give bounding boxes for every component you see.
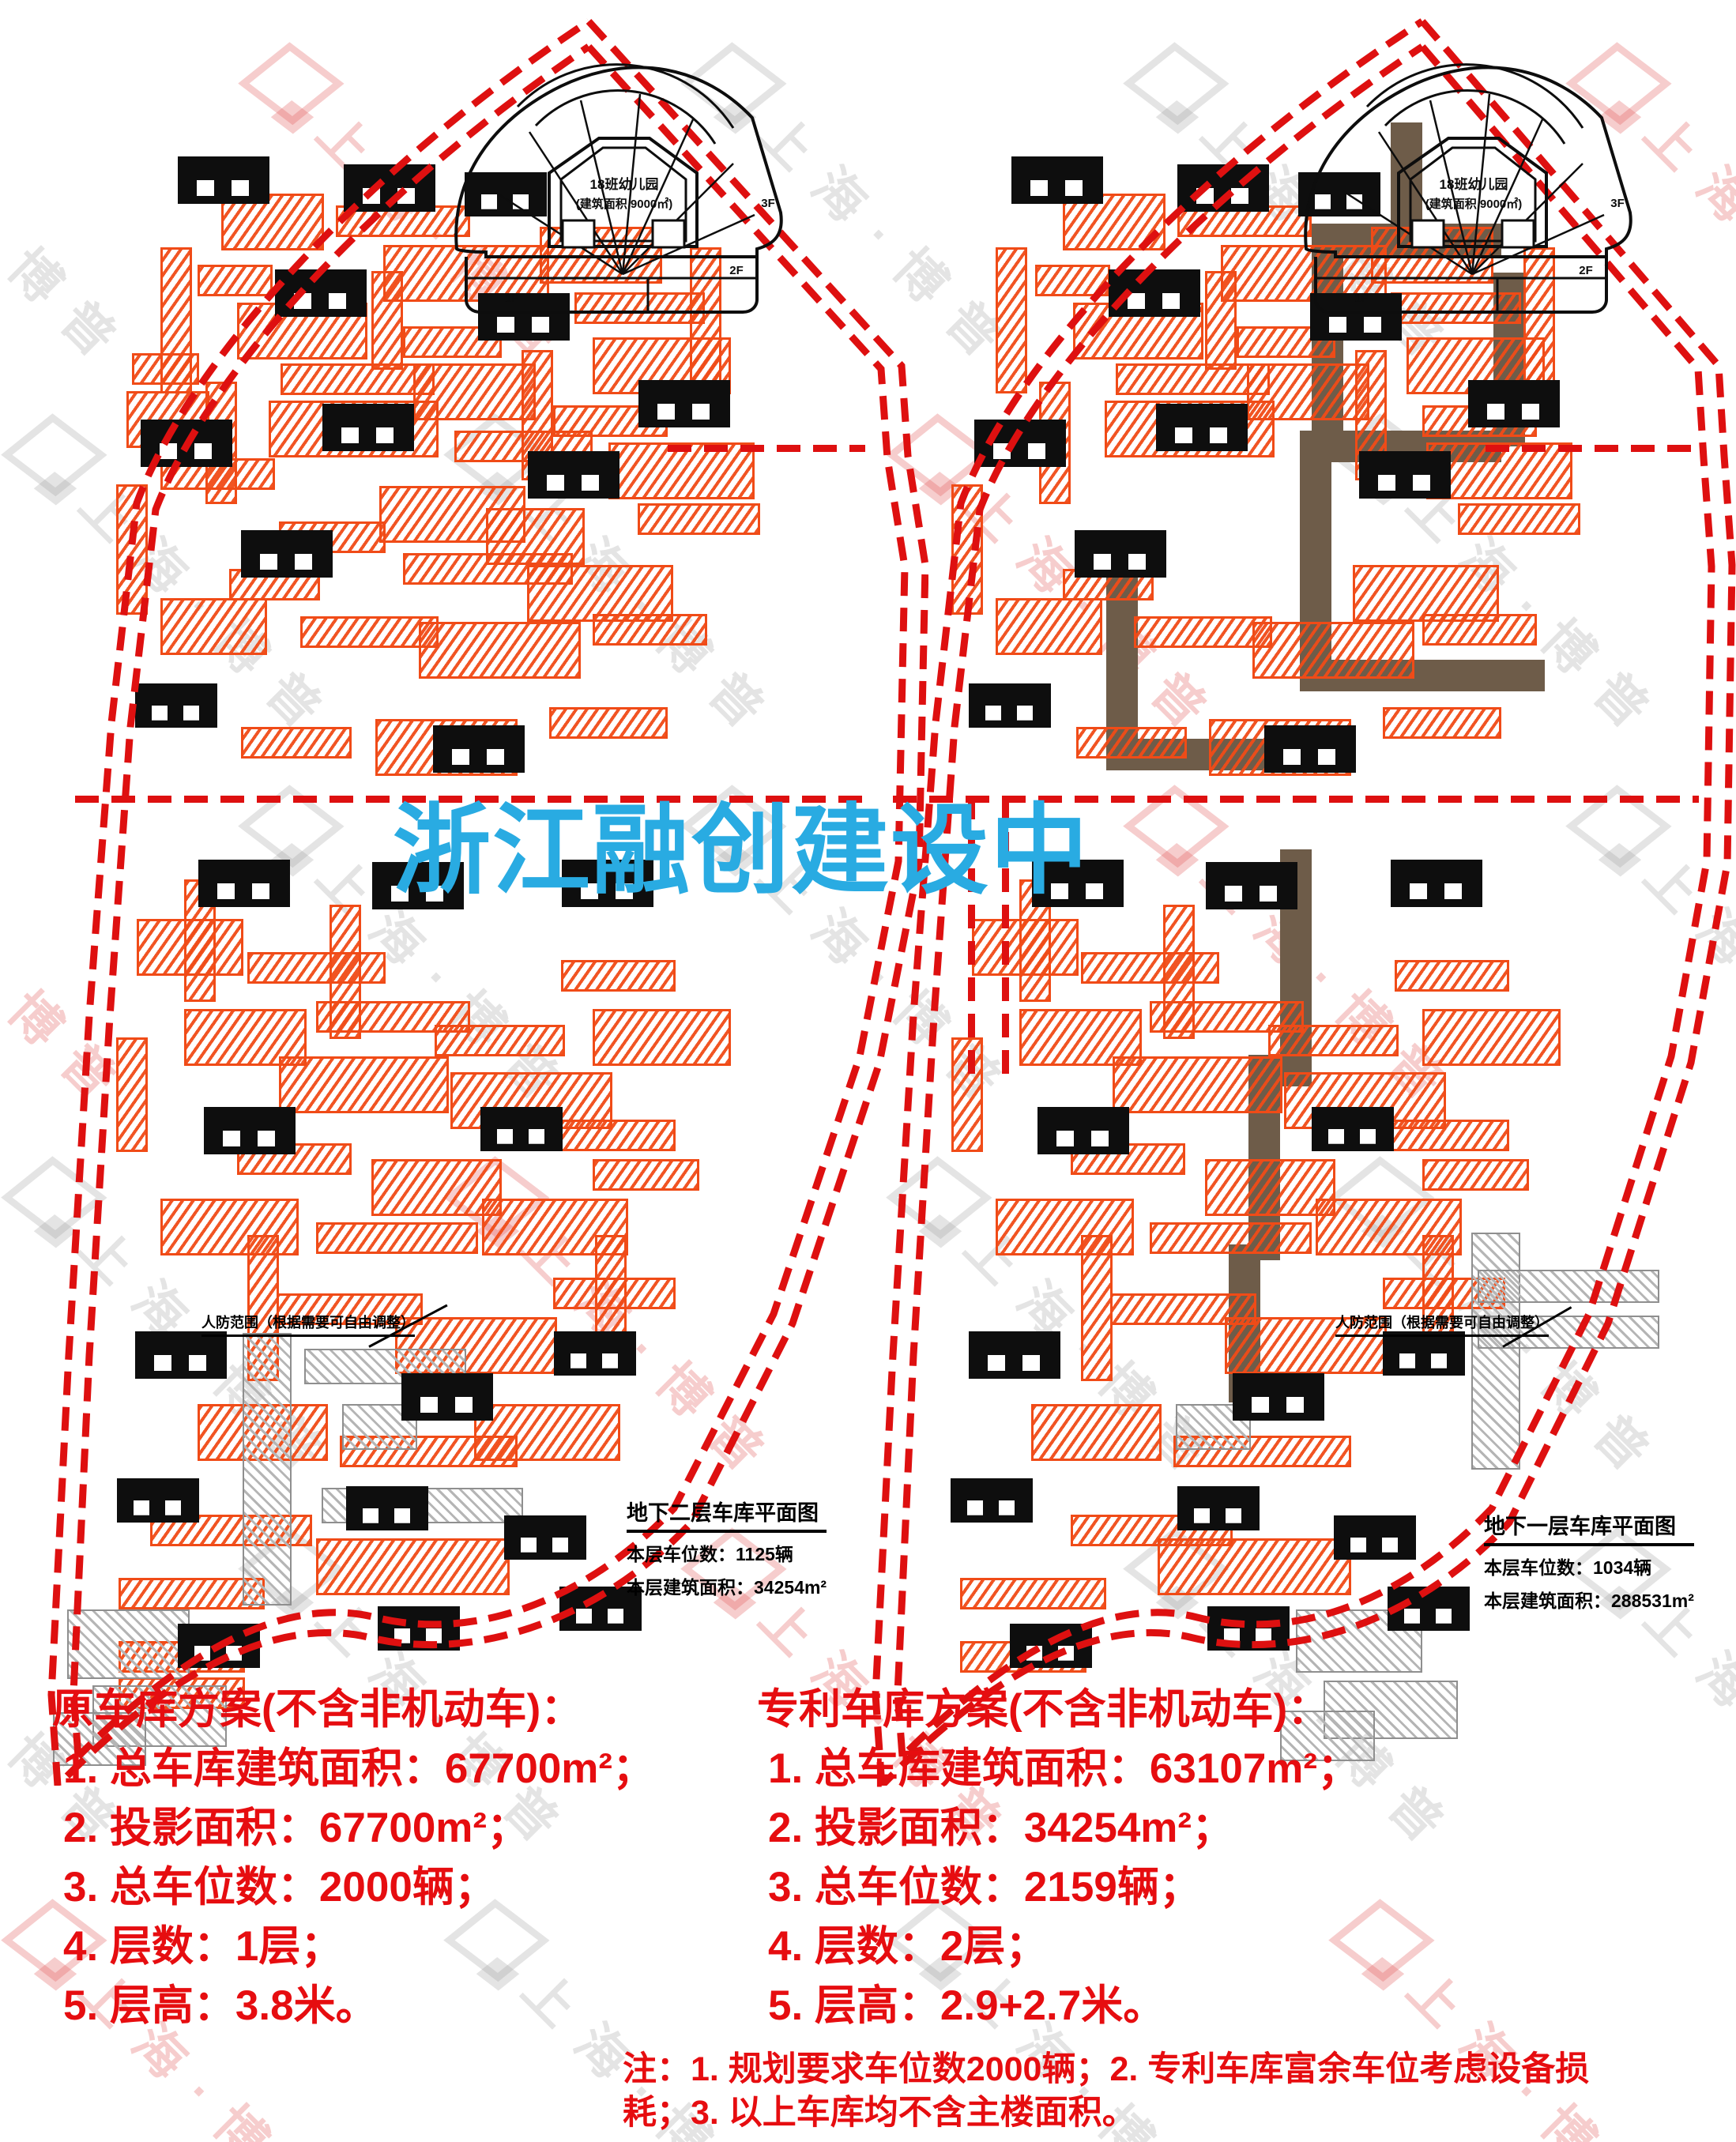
plan-area-right: 本层建筑面积：288531m² bbox=[1484, 1586, 1694, 1613]
summary-left-item: 4. 层数：1层； bbox=[52, 1917, 654, 1976]
summary-right-item: 1. 总车库建筑面积：63107m²； bbox=[757, 1739, 1359, 1798]
plan-stalls-right: 本层车位数：1034辆 bbox=[1484, 1553, 1694, 1579]
kindergarten-building-drawing: 18班幼儿园(建筑面积 9000㎡)1F2F3F bbox=[1292, 45, 1648, 318]
overlay-title: 浙江融创建设中 bbox=[393, 770, 1090, 913]
kindergarten-building-drawing: 18班幼儿园(建筑面积 9000㎡)1F2F3F bbox=[442, 45, 798, 318]
summary-right-item: 2. 投影面积：34254m²； bbox=[757, 1798, 1359, 1858]
floor-label-2f: 2F bbox=[729, 264, 744, 277]
summary-left-item: 1. 总车库建筑面积：67700m²； bbox=[52, 1739, 654, 1798]
civil-defense-annotation-left: 人防范围（根据需要可自由调整） bbox=[201, 1312, 415, 1337]
page-canvas: 上海·博普上海·博普上海·博普上海·博普上海·博普上海·博普上海·博普上海·博普… bbox=[0, 0, 1736, 2142]
floor-label-2f: 2F bbox=[1579, 264, 1593, 277]
floor-label-3f: 3F bbox=[761, 197, 775, 210]
summary-right-item: 5. 层高：2.9+2.7米。 bbox=[757, 1976, 1359, 2035]
info-box-right: 地下一层车库平面图 本层车位数：1034辆 本层建筑面积：288531m² bbox=[1484, 1509, 1694, 1613]
summary-left-item: 2. 投影面积：67700m²； bbox=[52, 1798, 654, 1858]
floor-label-3f: 3F bbox=[1610, 197, 1625, 210]
summary-left-header: 原车库方案(不含非机动车)： bbox=[52, 1680, 654, 1739]
kindergarten-label: 18班幼儿园 bbox=[1440, 176, 1508, 192]
floor-label-1f: 1F bbox=[1354, 292, 1369, 305]
summary-right-item: 4. 层数：2层； bbox=[757, 1917, 1359, 1976]
kindergarten-area-label: (建筑面积 9000㎡) bbox=[576, 197, 673, 211]
summary-right-item: 3. 总车位数：2159辆； bbox=[757, 1858, 1359, 1917]
plan-title-right: 地下一层车库平面图 bbox=[1484, 1509, 1694, 1546]
summary-left-item: 3. 总车位数：2000辆； bbox=[52, 1858, 654, 1917]
footnote-line: 耗；3. 以上车库均不含主楼面积。 bbox=[623, 2091, 1589, 2135]
info-box-left: 地下二层车库平面图 本层车位数：1125辆 本层建筑面积：34254m² bbox=[627, 1496, 827, 1599]
summary-patent-scheme: 专利车库方案(不含非机动车)： 1. 总车库建筑面积：63107m²； 2. 投… bbox=[757, 1680, 1359, 2035]
kindergarten-area-label: (建筑面积 9000㎡) bbox=[1425, 197, 1523, 211]
kindergarten-label: 18班幼儿园 bbox=[590, 176, 659, 192]
footnote-line: 注：1. 规划要求车位数2000辆；2. 专利车库富余车位考虑设备损 bbox=[623, 2048, 1589, 2091]
plan-area-left: 本层建筑面积：34254m² bbox=[627, 1572, 827, 1599]
footnote: 注：1. 规划要求车位数2000辆；2. 专利车库富余车位考虑设备损 耗；3. … bbox=[623, 2048, 1589, 2135]
plan-title-left: 地下二层车库平面图 bbox=[627, 1496, 827, 1533]
summary-left-item: 5. 层高：3.8米。 bbox=[52, 1976, 654, 2035]
civil-defense-annotation-right: 人防范围（根据需要可自由调整） bbox=[1335, 1312, 1549, 1337]
kindergarten-building-left: 18班幼儿园(建筑面积 9000㎡)1F2F3F bbox=[442, 45, 798, 318]
plan-stalls-left: 本层车位数：1125辆 bbox=[627, 1539, 827, 1566]
kindergarten-building-right: 18班幼儿园(建筑面积 9000㎡)1F2F3F bbox=[1292, 45, 1648, 318]
summary-original-scheme: 原车库方案(不含非机动车)： 1. 总车库建筑面积：67700m²； 2. 投影… bbox=[52, 1680, 654, 2035]
summary-right-header: 专利车库方案(不含非机动车)： bbox=[757, 1680, 1359, 1739]
floor-label-1f: 1F bbox=[505, 292, 519, 305]
